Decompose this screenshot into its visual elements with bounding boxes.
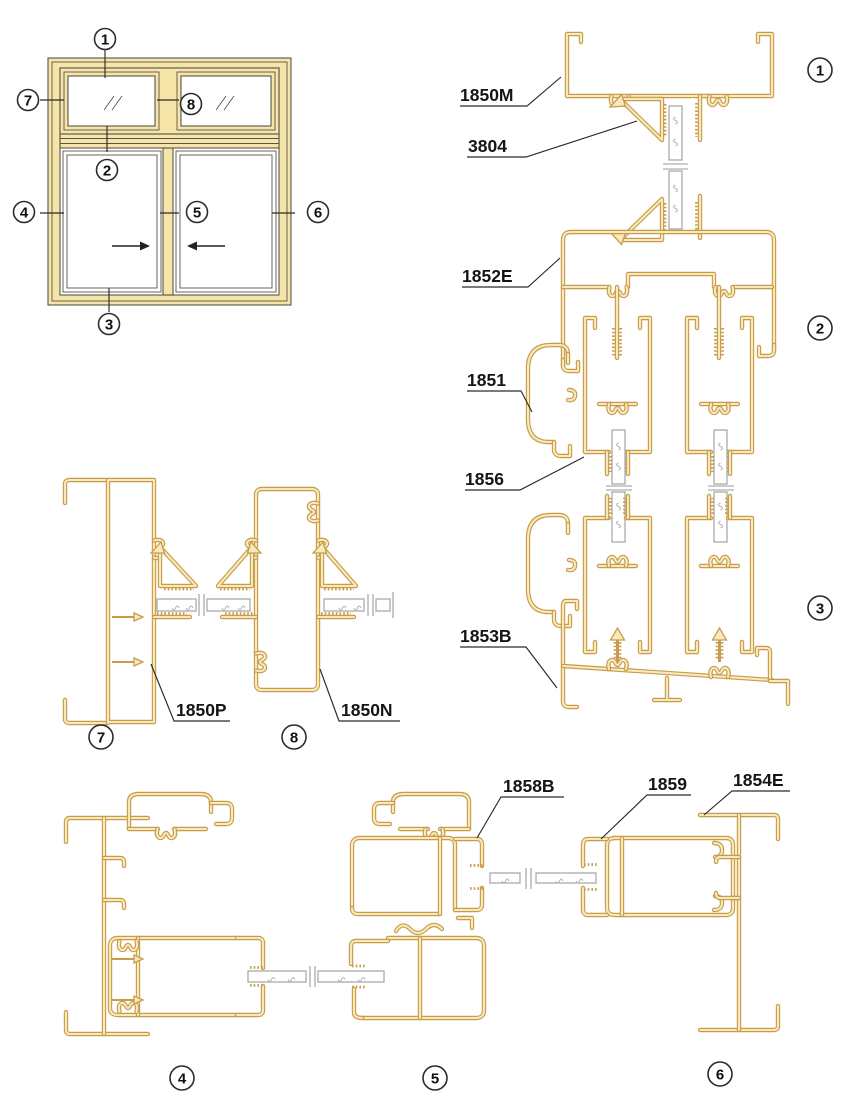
roller-adjuster-right (713, 628, 727, 662)
svg-text:5: 5 (193, 204, 201, 221)
profile-1851 (528, 345, 575, 456)
svg-text:7: 7 (24, 92, 32, 109)
section-3-assembly (528, 496, 788, 707)
label-1852E: 1852E (462, 266, 513, 286)
section-5-assembly (351, 794, 596, 1018)
label-1850P: 1850P (176, 700, 227, 720)
profile-1859 (583, 838, 733, 915)
profile-1854E (700, 815, 778, 1030)
svg-text:1: 1 (101, 31, 109, 48)
marker-4-elev: 4 (14, 202, 35, 223)
svg-text:3: 3 (816, 601, 824, 618)
glass-pane (663, 106, 688, 229)
section-7-assembly (65, 480, 250, 723)
section-8-assembly (218, 489, 393, 690)
transom (60, 134, 279, 148)
profile-1858B (352, 838, 483, 933)
marker-5-elev: 5 (187, 202, 208, 223)
label-1856: 1856 (465, 469, 504, 489)
marker-3-elev: 3 (99, 314, 120, 335)
mullion (163, 148, 173, 295)
profile-1853B (563, 601, 788, 707)
svg-text:7: 7 (97, 730, 105, 747)
label-1850N: 1850N (341, 700, 393, 720)
svg-text:4: 4 (20, 204, 29, 221)
marker-8: 8 (282, 725, 306, 749)
label-1854E: 1854E (733, 770, 784, 790)
section-2-assembly (528, 232, 774, 542)
label-1850M: 1850M (460, 85, 514, 105)
profile-1850N (218, 489, 356, 690)
glass-pane (324, 592, 393, 618)
glass-pane (490, 868, 596, 889)
diagram-canvas: 1 7 8 2 4 5 6 3 (0, 0, 850, 1104)
marker-2: 2 (808, 316, 832, 340)
svg-text:8: 8 (290, 730, 298, 747)
label-1851: 1851 (467, 370, 506, 390)
marker-2-elev: 2 (97, 160, 118, 181)
profile-1851-lower (528, 515, 575, 626)
svg-text:3: 3 (105, 316, 113, 333)
svg-text:4: 4 (178, 1071, 187, 1088)
fixed-glass-left (68, 76, 155, 126)
marker-3: 3 (808, 596, 832, 620)
svg-text:8: 8 (187, 96, 195, 113)
marker-1: 1 (808, 58, 832, 82)
roller-adjuster-left (611, 628, 625, 662)
label-1859: 1859 (648, 774, 687, 794)
section-4-assembly (66, 794, 384, 1034)
profile-3804 (610, 95, 665, 141)
label-1858B: 1858B (503, 776, 555, 796)
sash-stile-left (110, 938, 264, 1015)
section-1-assembly (567, 34, 772, 245)
svg-text:2: 2 (103, 162, 111, 179)
marker-8-elev: 8 (181, 94, 202, 115)
track-cap-mirrored (374, 794, 469, 838)
svg-text:1: 1 (816, 63, 824, 80)
svg-text:6: 6 (314, 204, 322, 221)
glazing-clip-lower (610, 196, 700, 245)
label-1853B: 1853B (460, 626, 512, 646)
window-elevation: 1 7 8 2 4 5 6 3 (14, 29, 329, 335)
marker-1-elev: 1 (95, 29, 116, 50)
marker-6-elev: 6 (308, 202, 329, 223)
glass-pane (708, 430, 734, 542)
svg-text:2: 2 (816, 321, 824, 338)
svg-text:6: 6 (716, 1067, 724, 1084)
section-6-assembly (583, 815, 778, 1030)
marker-7-elev: 7 (18, 90, 39, 111)
glass-pane (606, 430, 632, 542)
marker-4: 4 (170, 1066, 194, 1090)
marker-5: 5 (423, 1066, 447, 1090)
profile-1852E (563, 232, 774, 371)
glass-pane (248, 966, 384, 987)
marker-6: 6 (708, 1062, 732, 1086)
label-3804: 3804 (468, 136, 507, 156)
svg-text:5: 5 (431, 1071, 439, 1088)
marker-7: 7 (89, 725, 113, 749)
glass-pane (157, 594, 250, 616)
